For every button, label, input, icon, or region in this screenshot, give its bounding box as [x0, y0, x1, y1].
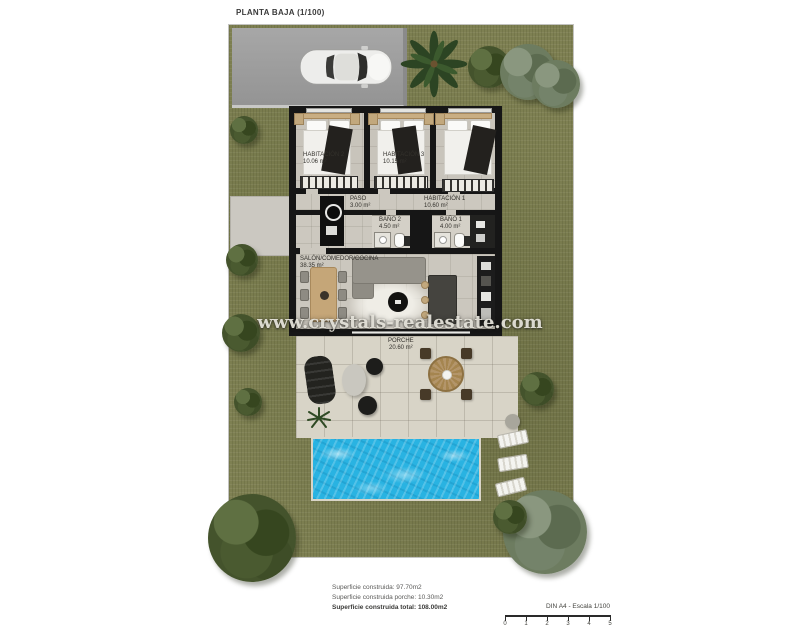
- room-label-porche: PORCHE20.60 m²: [388, 338, 414, 352]
- chair: [300, 289, 309, 301]
- washer-icon: [325, 204, 342, 221]
- sink-counter: [470, 215, 495, 248]
- room-label-habitacion2: HABITACIÓN 210.06 m²: [303, 152, 344, 166]
- car-icon: [298, 46, 394, 88]
- tree-icon: [532, 60, 580, 108]
- outdoor-chair: [420, 348, 431, 359]
- garden-stool: [505, 414, 520, 429]
- scale-label: DIN A4 - Escala 1/100: [470, 603, 610, 610]
- outdoor-chair: [420, 389, 431, 400]
- pouf: [358, 396, 377, 415]
- wall-bath-divider: [410, 215, 432, 252]
- scale-number: 3: [558, 621, 578, 627]
- wall-left: [289, 106, 296, 336]
- outdoor-dining-table: [428, 356, 464, 392]
- scale-number: 1: [516, 621, 536, 627]
- sink-icon: [476, 221, 485, 228]
- door-opening: [446, 210, 456, 215]
- room-label-habitacion3: HABITACIÓN 310.15 m²: [383, 152, 424, 166]
- tree-icon: [226, 244, 258, 276]
- coffee-table: [388, 292, 408, 312]
- page-title: PLANTA BAJA (1/100): [236, 8, 325, 17]
- floor-plan-page: HABITACIÓN 210.06 m² HABITACIÓN 310.15 m…: [0, 0, 800, 640]
- palm-tree-icon: [398, 28, 470, 100]
- sink-icon: [481, 262, 491, 270]
- outdoor-chair: [461, 348, 472, 359]
- summary-total: Superficie construida total: 108.00m2: [332, 603, 447, 613]
- headboard: [444, 113, 492, 119]
- pouf: [366, 358, 383, 375]
- shower-icon: [434, 232, 451, 248]
- swimming-pool: [311, 437, 481, 501]
- chair: [338, 289, 347, 301]
- opening-to-living: [300, 248, 326, 254]
- watermark: www.crystals-realestate.com: [228, 312, 572, 333]
- tree-icon: [234, 388, 262, 416]
- tree-icon: [208, 494, 296, 582]
- agave-plant-icon: [306, 406, 332, 430]
- centerpiece-bowl: [320, 291, 329, 300]
- beanbag: [342, 364, 366, 396]
- room-label-salon: SALÓN/COMEDOR/COCINA38.35 m²: [300, 256, 378, 270]
- bed: [444, 113, 492, 175]
- headboard: [303, 113, 351, 119]
- scale-number: 2: [537, 621, 557, 627]
- wardrobe: [442, 179, 494, 192]
- bath-cabinet: [404, 236, 410, 246]
- scale-number: 4: [579, 621, 599, 627]
- summary-porch: Superficie construida porche: 10.30m2: [332, 593, 447, 603]
- chair: [300, 271, 309, 283]
- scale-tick-numbers: 0 1 2 3 4 5: [495, 621, 621, 629]
- wall-right: [495, 106, 502, 336]
- room-label-paso: PASO3.00 m²: [350, 196, 370, 210]
- counter-appliance: [481, 292, 491, 301]
- tree-icon: [493, 500, 527, 534]
- scale-number: 5: [600, 621, 620, 627]
- headboard: [377, 113, 425, 119]
- area-summary: Superficie construida: 97.70m2 Superfici…: [332, 583, 447, 612]
- nightstand: [350, 113, 360, 125]
- wardrobe: [300, 176, 358, 189]
- chair: [338, 271, 347, 283]
- plate-icon: [442, 370, 452, 380]
- outdoor-chair: [461, 389, 472, 400]
- tree-icon: [230, 116, 258, 144]
- dryer-icon: [326, 226, 337, 235]
- room-label-bano1: BAÑO 14.00 m²: [440, 217, 462, 231]
- tree-icon: [520, 372, 554, 406]
- summary-built: Superficie construida: 97.70m2: [332, 583, 447, 593]
- shower-icon: [374, 232, 391, 248]
- wardrobe: [374, 176, 428, 189]
- room-label-bano2: BAÑO 24.50 m²: [379, 217, 401, 231]
- stool: [421, 296, 429, 304]
- cooktop-icon: [481, 276, 491, 286]
- sink-icon: [476, 234, 485, 242]
- nightstand: [424, 113, 434, 125]
- stool: [421, 281, 429, 289]
- scale-number: 0: [495, 621, 515, 627]
- laundry-closet: [320, 196, 344, 246]
- door-opening: [386, 210, 396, 215]
- room-label-habitacion1: HABITACIÓN 110.60 m²: [424, 196, 465, 210]
